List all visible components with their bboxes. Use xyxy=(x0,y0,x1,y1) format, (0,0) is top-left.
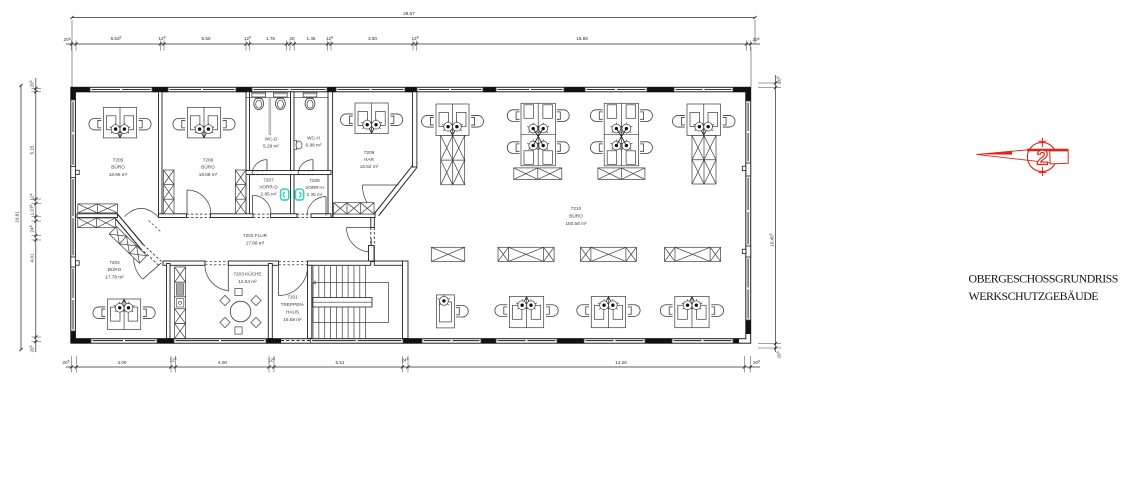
svg-text:7205: 7205 xyxy=(113,158,124,163)
svg-text:7202 FLUR: 7202 FLUR xyxy=(243,233,268,238)
svg-text:VORR-H: VORR-H xyxy=(305,185,324,190)
svg-text:7204: 7204 xyxy=(109,260,120,265)
svg-text:TREPPEN-: TREPPEN- xyxy=(281,302,305,307)
svg-text:28.67: 28.67 xyxy=(403,11,415,16)
svg-text:15.88: 15.88 xyxy=(576,36,588,41)
svg-text:7208: 7208 xyxy=(309,178,320,183)
svg-text:7203 KÜCHE: 7203 KÜCHE xyxy=(233,271,261,277)
svg-text:WERKSCHUTZGEBÄUDE: WERKSCHUTZGEBÄUDE xyxy=(969,289,1099,303)
svg-text:12.04 m²: 12.04 m² xyxy=(238,279,257,284)
svg-text:7209: 7209 xyxy=(364,150,375,155)
svg-text:1.75: 1.75 xyxy=(266,36,275,41)
svg-text:OBERGESCHOSSGRUNDRISS: OBERGESCHOSSGRUNDRISS xyxy=(969,272,1118,286)
svg-text:7210: 7210 xyxy=(571,206,582,211)
svg-text:16.58 m²: 16.58 m² xyxy=(283,317,302,322)
svg-text:17.78 m²: 17.78 m² xyxy=(105,275,124,280)
svg-text:5.15: 5.15 xyxy=(30,145,35,154)
svg-text:2.35 m²: 2.35 m² xyxy=(307,192,323,197)
svg-text:2.85 m²: 2.85 m² xyxy=(261,192,277,197)
svg-text:17.88 m²: 17.88 m² xyxy=(246,241,265,246)
svg-text:1.45: 1.45 xyxy=(307,36,316,41)
svg-text:WC-H: WC-H xyxy=(307,136,320,141)
svg-text:7206: 7206 xyxy=(203,158,214,163)
svg-text:5.50: 5.50 xyxy=(202,36,211,41)
svg-text:BÜRO: BÜRO xyxy=(201,164,215,170)
svg-text:2: 2 xyxy=(1037,146,1049,169)
svg-text:VORR-D: VORR-D xyxy=(259,185,278,190)
svg-text:3.50: 3.50 xyxy=(368,36,377,41)
svg-text:10.455: 10.455 xyxy=(769,233,774,247)
svg-text:HAR: HAR xyxy=(364,157,375,162)
svg-text:4.00: 4.00 xyxy=(118,360,127,365)
svg-text:BÜRO: BÜRO xyxy=(108,266,122,272)
svg-text:5.29 m²: 5.29 m² xyxy=(263,144,279,149)
svg-text:4: 4 xyxy=(313,280,316,286)
svg-text:7207: 7207 xyxy=(263,178,274,183)
svg-text:BÜRO: BÜRO xyxy=(569,213,583,219)
svg-text:4.01: 4.01 xyxy=(30,253,35,262)
svg-text:4.00: 4.00 xyxy=(218,360,227,365)
svg-text:18.96 m²: 18.96 m² xyxy=(109,172,128,177)
svg-text:WC-D: WC-D xyxy=(265,137,278,142)
svg-text:18.08 m²: 18.08 m² xyxy=(199,172,218,177)
svg-text:10.61: 10.61 xyxy=(15,211,20,223)
svg-text:14.26: 14.26 xyxy=(615,360,627,365)
svg-text:5.51: 5.51 xyxy=(336,360,345,365)
svg-text:7101: 7101 xyxy=(287,295,298,300)
svg-text:150.58 m²: 150.58 m² xyxy=(565,221,587,226)
svg-text:20: 20 xyxy=(289,36,295,41)
svg-text:HAUS: HAUS xyxy=(286,310,299,315)
svg-text:6.98 m²: 6.98 m² xyxy=(306,143,322,148)
svg-text:BÜRO: BÜRO xyxy=(111,164,125,170)
svg-text:16.52 m²: 16.52 m² xyxy=(360,164,379,169)
